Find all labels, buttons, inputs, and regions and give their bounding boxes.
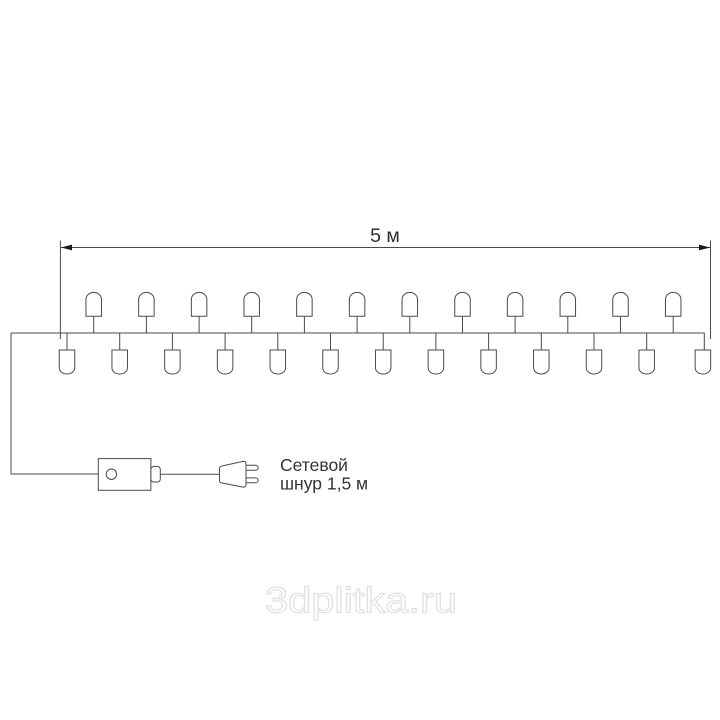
svg-text:Сетевой: Сетевой xyxy=(280,455,348,475)
svg-text:5 м: 5 м xyxy=(370,225,400,247)
svg-text:шнур 1,5 м: шнур 1,5 м xyxy=(280,474,368,494)
svg-text:3dplitka.ru: 3dplitka.ru xyxy=(265,580,457,621)
